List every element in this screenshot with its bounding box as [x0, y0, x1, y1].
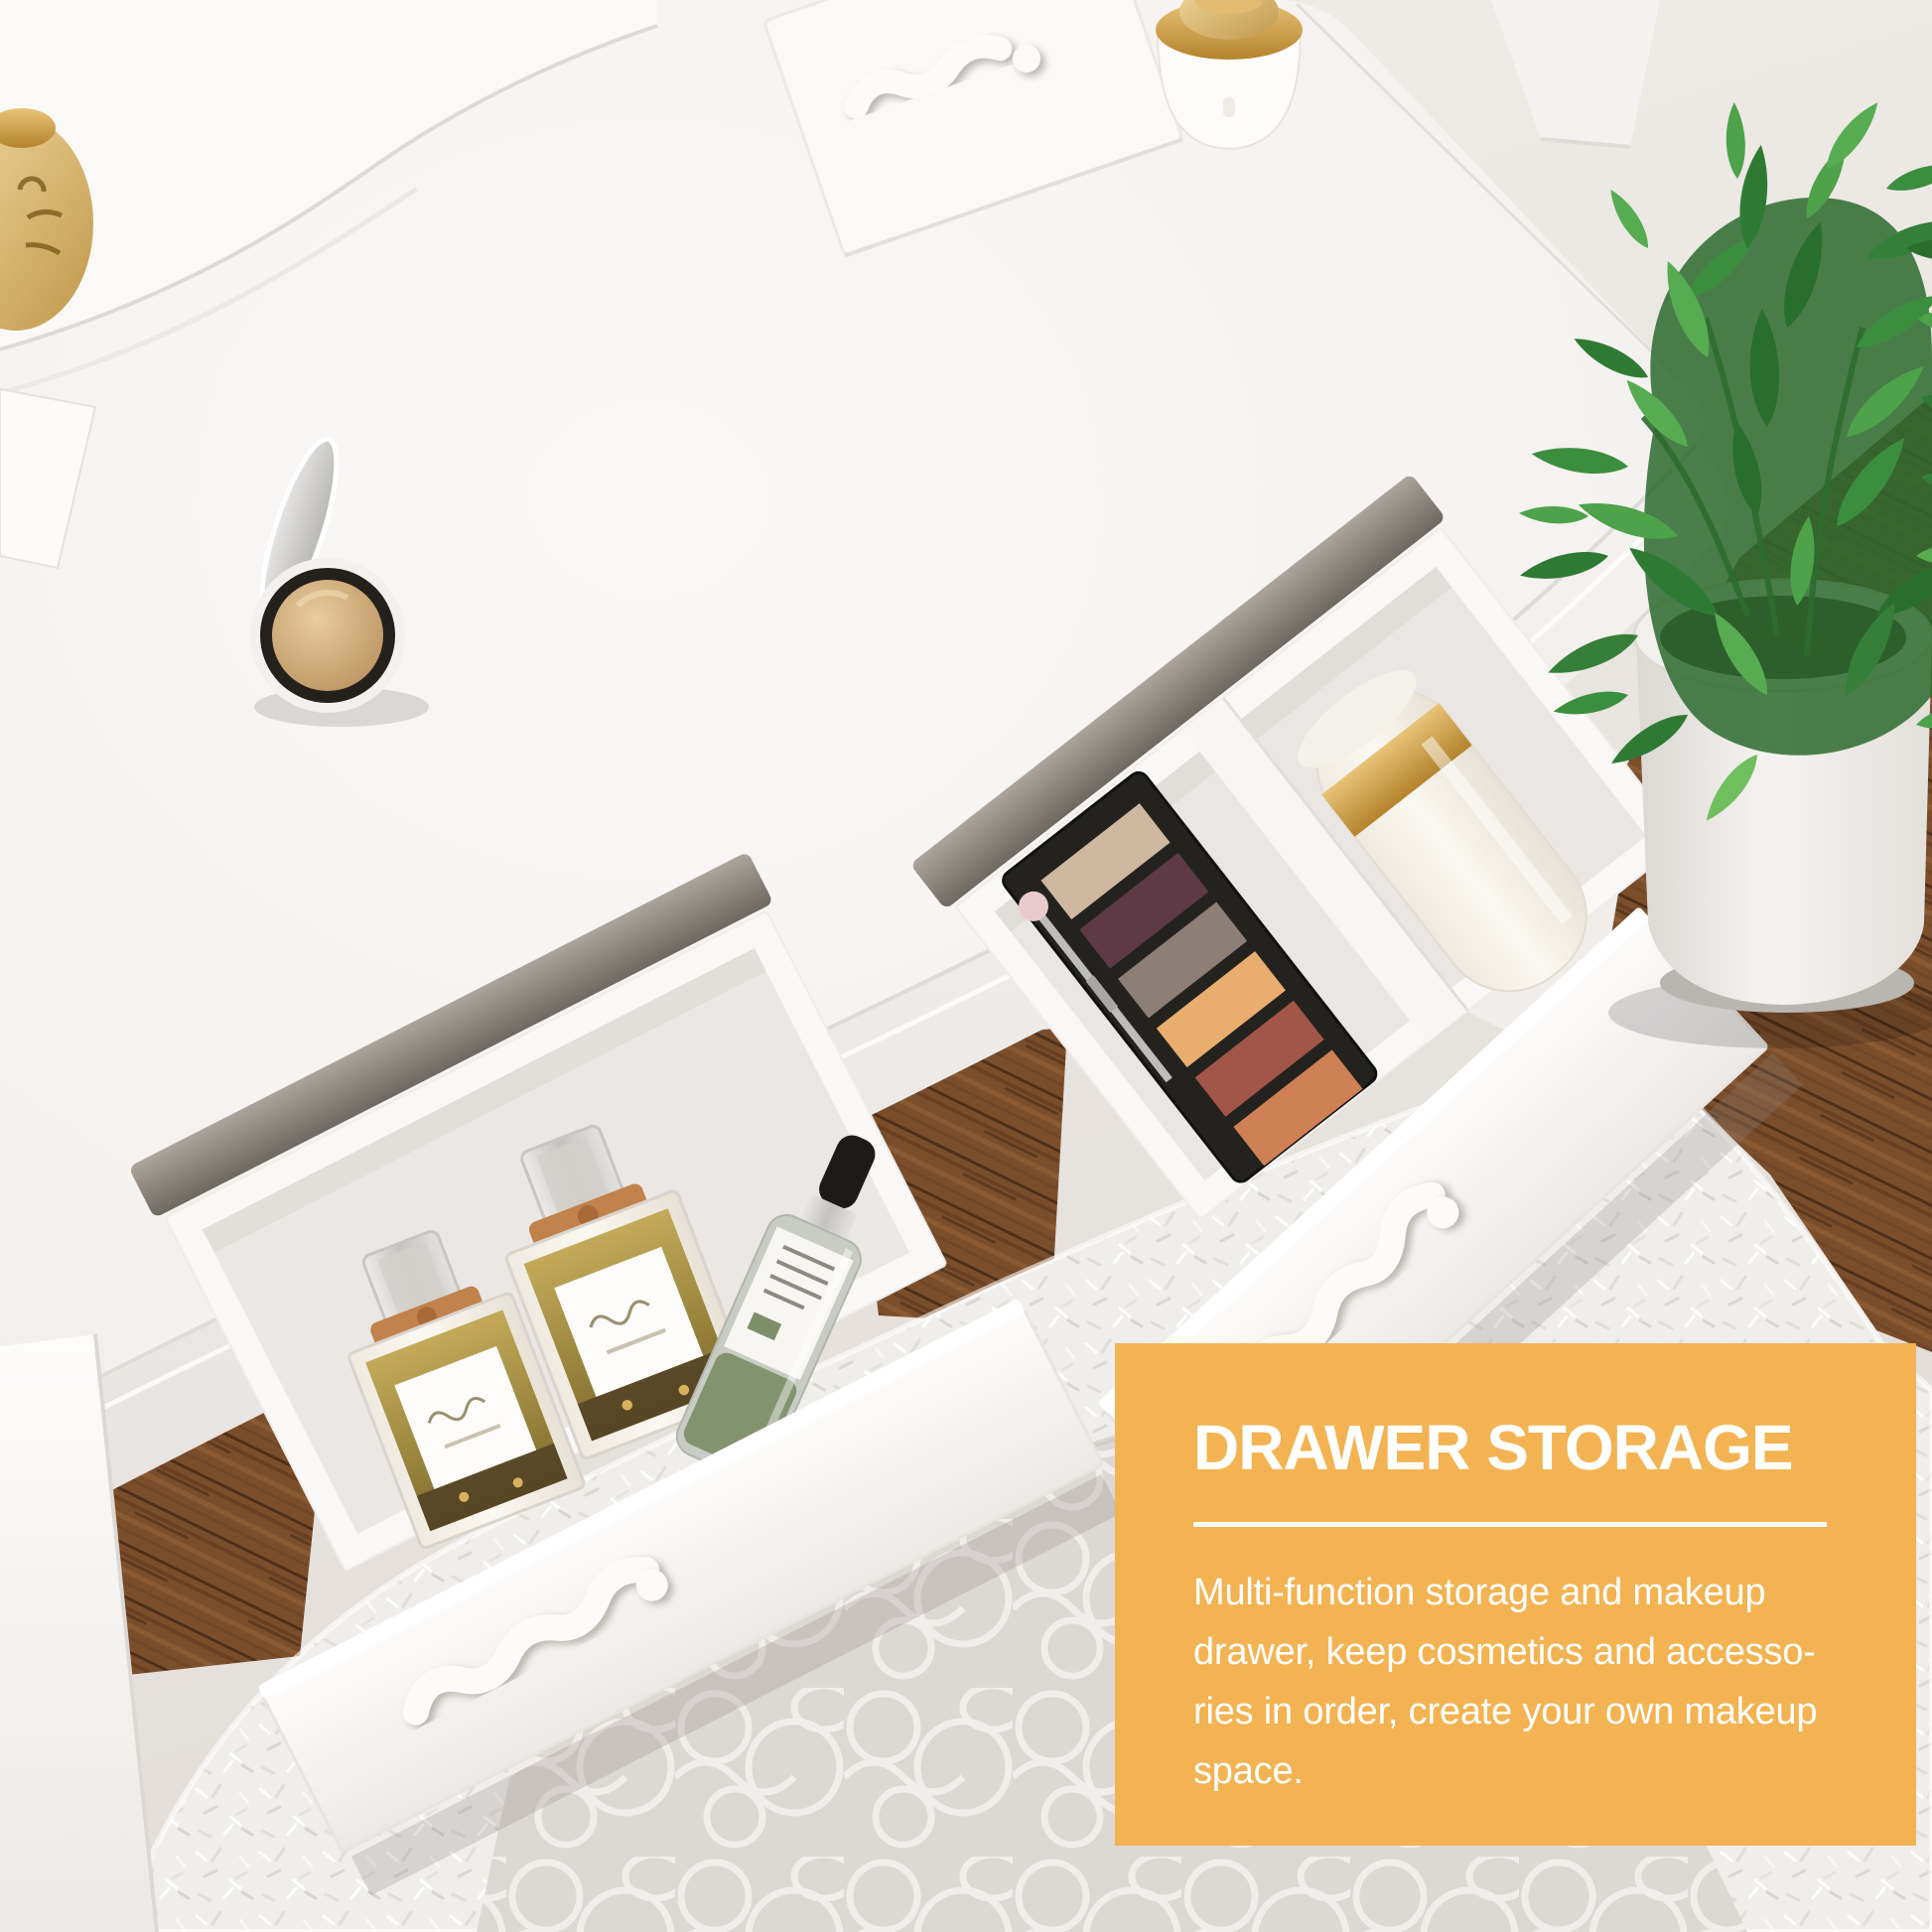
overlay-body: Multi-function storage and makeup drawer… [1193, 1563, 1876, 1801]
drawer-storage-overlay: DRAWER STORAGE Multi-function storage an… [1115, 1343, 1916, 1846]
overlay-body-line: drawer, keep cosmetics and accesso- [1193, 1622, 1876, 1682]
overlay-body-line: ries in order, create your own makeup [1193, 1682, 1876, 1741]
overlay-body-line: space. [1193, 1741, 1876, 1801]
pressed-powder [272, 580, 383, 691]
product-photo-scene: DRAWER STORAGE Multi-function storage an… [0, 0, 1932, 1932]
overlay-title: DRAWER STORAGE [1193, 1415, 1876, 1480]
overlay-body-line: Multi-function storage and makeup [1193, 1563, 1876, 1622]
overlay-divider [1193, 1522, 1827, 1527]
